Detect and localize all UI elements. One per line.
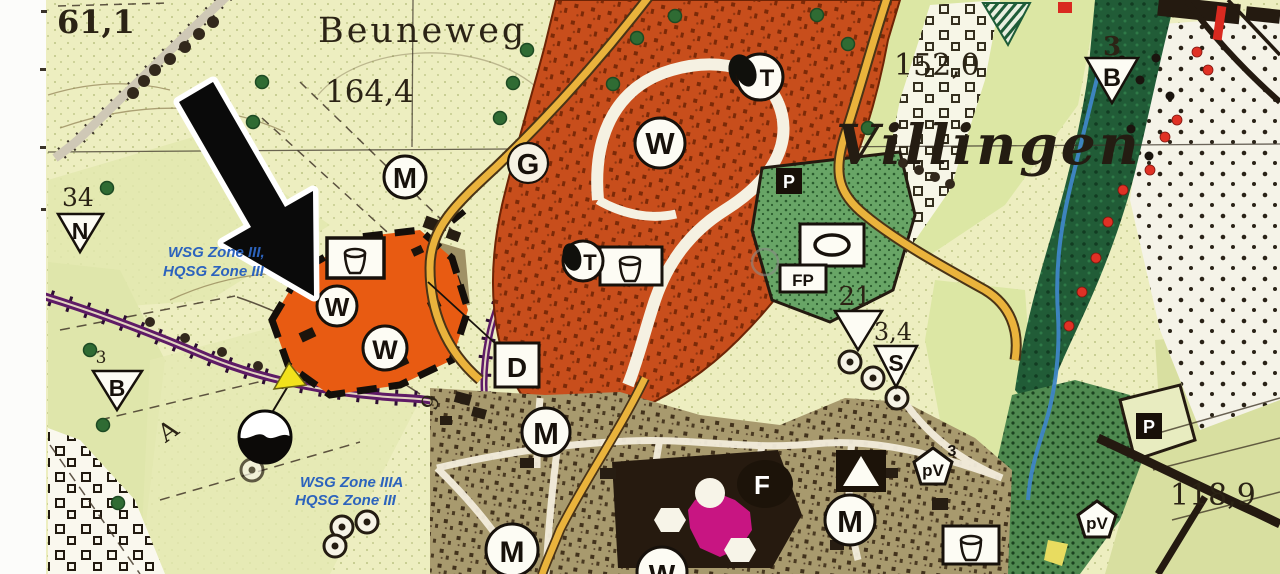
w-label: W: [372, 335, 398, 365]
f-marker: F: [737, 460, 793, 508]
p-label: P: [783, 172, 795, 192]
bucket-box-parcel: [327, 238, 384, 278]
number-3: 3: [948, 443, 957, 460]
scan-margin: [0, 0, 47, 574]
p-box-park: P: [776, 168, 802, 194]
t-label: T: [760, 65, 775, 92]
w-label: W: [325, 292, 350, 322]
number-3: 3: [1103, 32, 1121, 62]
elevation-118: 118,9: [1170, 478, 1256, 513]
city-name: Villingen: [836, 112, 1142, 177]
elevation-164: 164,4: [325, 74, 414, 110]
wsg-zone-upper-line2: HQSG Zone III: [163, 263, 265, 280]
g-label: G: [517, 149, 540, 181]
number-3-4: 3,4: [874, 318, 912, 346]
f-label: F: [754, 470, 770, 500]
m-label: M: [500, 536, 525, 569]
elevation-61: 61,1: [57, 3, 135, 41]
m-label: M: [393, 163, 417, 195]
elevation-152: 152,0: [894, 48, 980, 83]
s-label: S: [888, 350, 903, 376]
m-label: M: [533, 416, 559, 451]
street-name: Beuneweg: [318, 11, 527, 51]
p-box-southeast: P: [1136, 413, 1162, 439]
track-box: [800, 224, 864, 266]
number-3: 3: [96, 348, 107, 368]
fp-box: FP: [780, 265, 826, 292]
scanned-zoning-map: FP P P D M G W T T W W M M W: [0, 0, 1280, 574]
bucket-box-center: [600, 247, 662, 285]
number-21: 21: [838, 282, 871, 312]
wsg-zone-upper-line1: WSG Zone III,: [168, 244, 265, 261]
number-34: 34: [62, 183, 94, 212]
fp-label: FP: [792, 271, 814, 290]
n-label: N: [72, 218, 89, 244]
b-label: B: [1103, 64, 1121, 92]
t-label: T: [583, 250, 597, 275]
pv-label: pV: [922, 461, 944, 480]
m-label: M: [837, 504, 863, 539]
bucket-box-south: [943, 526, 999, 564]
w-label: W: [645, 126, 675, 161]
p-label: P: [1143, 417, 1155, 437]
wsg-zone-lower-line2: HQSG Zone III: [295, 492, 397, 509]
d-label: D: [507, 352, 527, 383]
w-label: W: [649, 559, 676, 574]
b-label: B: [109, 375, 126, 401]
wsg-zone-lower-line1: WSG Zone IIIA: [300, 474, 403, 491]
pv-label: pV: [1086, 514, 1108, 533]
